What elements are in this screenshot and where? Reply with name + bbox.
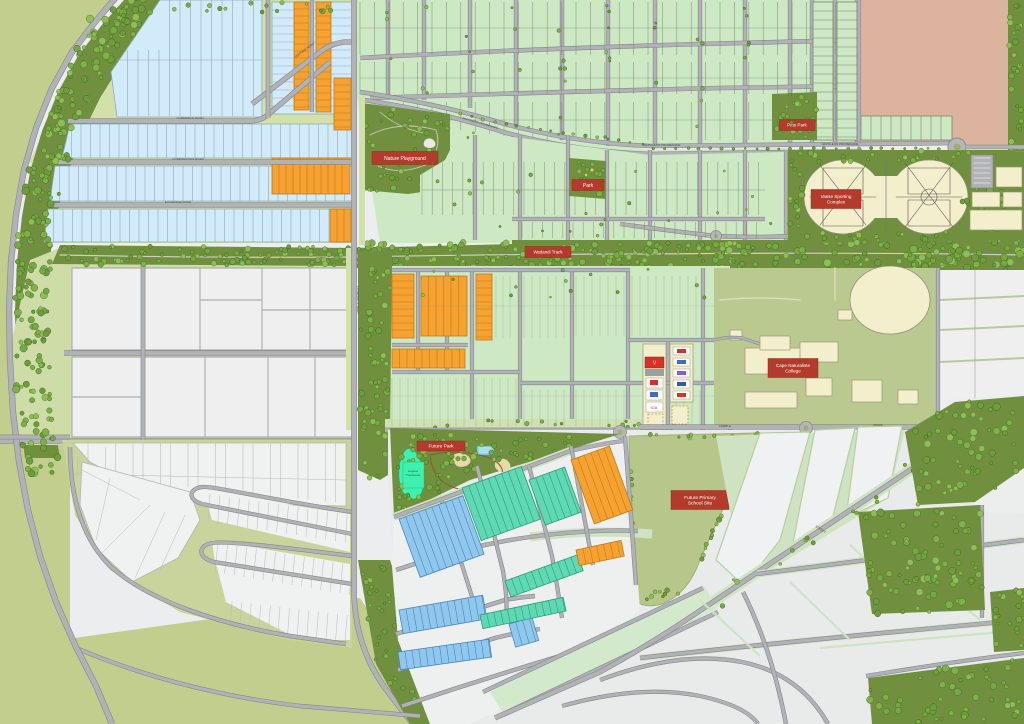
svg-text:DRIVE: DRIVE xyxy=(873,423,882,427)
svg-text:Future Primary: Future Primary xyxy=(684,495,716,501)
svg-text:Nature Playground: Nature Playground xyxy=(384,156,426,162)
svg-text:COMMERCE ROAD: COMMERCE ROAD xyxy=(176,116,204,120)
svg-text:Complex: Complex xyxy=(827,199,846,204)
svg-text:NAPOLEON PROMENADE: NAPOLEON PROMENADE xyxy=(644,143,681,147)
svg-text:Treehouse: Treehouse xyxy=(406,473,421,477)
svg-text:College: College xyxy=(785,368,801,373)
svg-text:IGA: IGA xyxy=(651,405,658,410)
svg-text:Wadandi Track: Wadandi Track xyxy=(533,250,563,255)
svg-text:FERBLE: FERBLE xyxy=(719,424,731,428)
svg-text:Park: Park xyxy=(583,183,594,189)
svg-text:LYNWOOD STREET: LYNWOOD STREET xyxy=(356,286,360,314)
svg-text:NAPOLEON PROMENADE: NAPOLEON PROMENADE xyxy=(822,142,859,146)
svg-text:Future Park: Future Park xyxy=(428,444,454,450)
svg-text:CORPORATION ROAD: CORPORATION ROAD xyxy=(172,157,204,161)
svg-text:School Site: School Site xyxy=(688,501,713,507)
svg-text:Cape Naturaliste: Cape Naturaliste xyxy=(776,363,811,368)
svg-text:Vasse Sporting: Vasse Sporting xyxy=(821,194,852,199)
svg-text:EXCHANGE ROAD: EXCHANGE ROAD xyxy=(165,200,192,204)
